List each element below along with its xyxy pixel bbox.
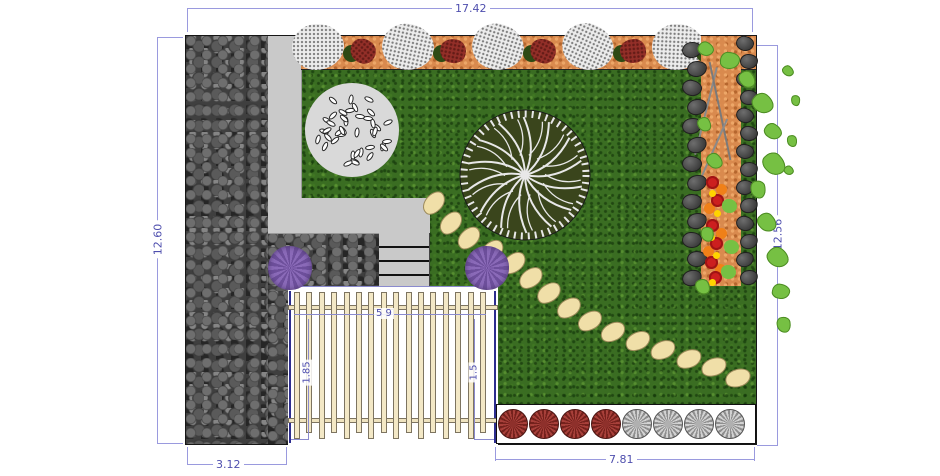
- climber-leaf-cluster: [761, 120, 784, 143]
- fence-width-label: 5 9: [374, 308, 394, 319]
- climber-leaf-cluster: [780, 63, 796, 79]
- garden-steps: [379, 233, 430, 291]
- step-edge: [379, 274, 429, 276]
- pebble: [345, 107, 356, 113]
- boulder: [739, 125, 759, 143]
- top-bed-red-flower: [345, 33, 380, 68]
- top-dim-ext-left: [187, 8, 188, 32]
- boulder: [681, 155, 702, 173]
- pebble: [354, 113, 365, 119]
- flower-yellow: [713, 252, 720, 259]
- fence: 5 9 1.85 1.5: [288, 286, 498, 445]
- top-bed-gray-shrub: [466, 17, 529, 76]
- pebble: [321, 141, 330, 152]
- right-dim-tick-bottom: [757, 445, 778, 446]
- bottom-shrub-row: [496, 404, 756, 444]
- fence-height-left-label: 1.85: [302, 359, 313, 385]
- paved-path-horizontal: [268, 198, 430, 234]
- leaf: [721, 265, 736, 279]
- boulder: [739, 89, 759, 106]
- bottom-shrub-red: [498, 409, 528, 439]
- top-bed-gray-shrub: [378, 19, 439, 75]
- boulder: [735, 179, 754, 196]
- climber-leaf-cluster: [776, 316, 792, 334]
- top-dim-ext-right: [752, 8, 753, 32]
- bottom-shrub-gray: [715, 409, 745, 439]
- br-dim-label: 7.81: [606, 453, 637, 466]
- garden-plan-canvas: 17.42 12.60 12.56 3.12 7.81: [0, 0, 940, 476]
- right-planting-bed: [681, 36, 756, 286]
- top-bed-red-flower: [526, 34, 560, 67]
- flower-red: [706, 219, 719, 232]
- bottom-shrub-red: [591, 409, 621, 439]
- boulder: [738, 232, 760, 252]
- fence-dim-bracket: [474, 439, 494, 440]
- gravel-bed-left: [186, 36, 268, 444]
- bl-dim-ext-right: [286, 447, 287, 465]
- pebble: [314, 134, 322, 145]
- flower-yellow: [709, 279, 716, 286]
- gravel-strip-fence-left: [268, 291, 288, 444]
- climber-leaf-cluster: [786, 134, 798, 148]
- left-dim-label: 12.60: [151, 221, 164, 259]
- step-edge: [379, 246, 429, 248]
- fence-height-right-label: 1.5: [468, 363, 479, 383]
- boulder: [739, 268, 760, 287]
- purple-bush: [268, 246, 312, 290]
- bottom-shrub-gray: [653, 409, 683, 439]
- plan-area: 5 9 1.85 1.5: [185, 35, 757, 445]
- boulder: [681, 40, 704, 59]
- bottom-shrub-red: [529, 409, 559, 439]
- pebble: [365, 144, 376, 150]
- step-edge: [379, 260, 429, 262]
- pebble: [363, 95, 374, 104]
- bottom-shrub-gray: [684, 409, 714, 439]
- leaf: [722, 199, 737, 213]
- right-dim-tick-top: [757, 45, 778, 46]
- boulder: [681, 78, 704, 98]
- flower-red: [706, 176, 719, 189]
- boulder: [682, 232, 702, 248]
- purple-bush: [465, 246, 509, 290]
- bottom-shrub-red: [560, 409, 590, 439]
- leaf: [724, 240, 739, 254]
- boulder: [738, 196, 760, 216]
- top-dim-label: 17.42: [452, 2, 490, 15]
- climber-leaf-cluster: [791, 95, 801, 106]
- pebble-circle: [305, 83, 399, 177]
- top-bed-gray-shrub: [292, 24, 344, 70]
- bottom-shrub-gray: [622, 409, 652, 439]
- bl-dim-label: 3.12: [213, 458, 244, 471]
- top-bed-gray-shrub: [555, 15, 622, 79]
- left-dim-tick-bottom: [157, 443, 183, 444]
- left-dim-tick-top: [157, 37, 183, 38]
- pebble: [365, 151, 375, 162]
- boulder: [681, 193, 702, 210]
- right-dim-label: 12.56: [771, 216, 784, 254]
- pebble: [342, 159, 353, 168]
- pebble: [328, 95, 339, 105]
- pebble: [354, 127, 360, 138]
- flower-yellow: [709, 190, 716, 197]
- flower-yellow: [708, 234, 715, 241]
- climber-leaf-cluster: [782, 164, 795, 177]
- pebble: [382, 118, 393, 127]
- bl-dim-ext-left: [187, 447, 188, 465]
- boulder: [740, 54, 758, 70]
- climber-leaf-cluster: [771, 282, 792, 300]
- pebble: [327, 110, 338, 121]
- fence-dim-bracket: [291, 439, 309, 440]
- tree-canopy: [455, 105, 595, 245]
- flower-yellow: [714, 210, 721, 217]
- climber-leaf-cluster: [758, 148, 789, 179]
- boulder: [739, 161, 759, 179]
